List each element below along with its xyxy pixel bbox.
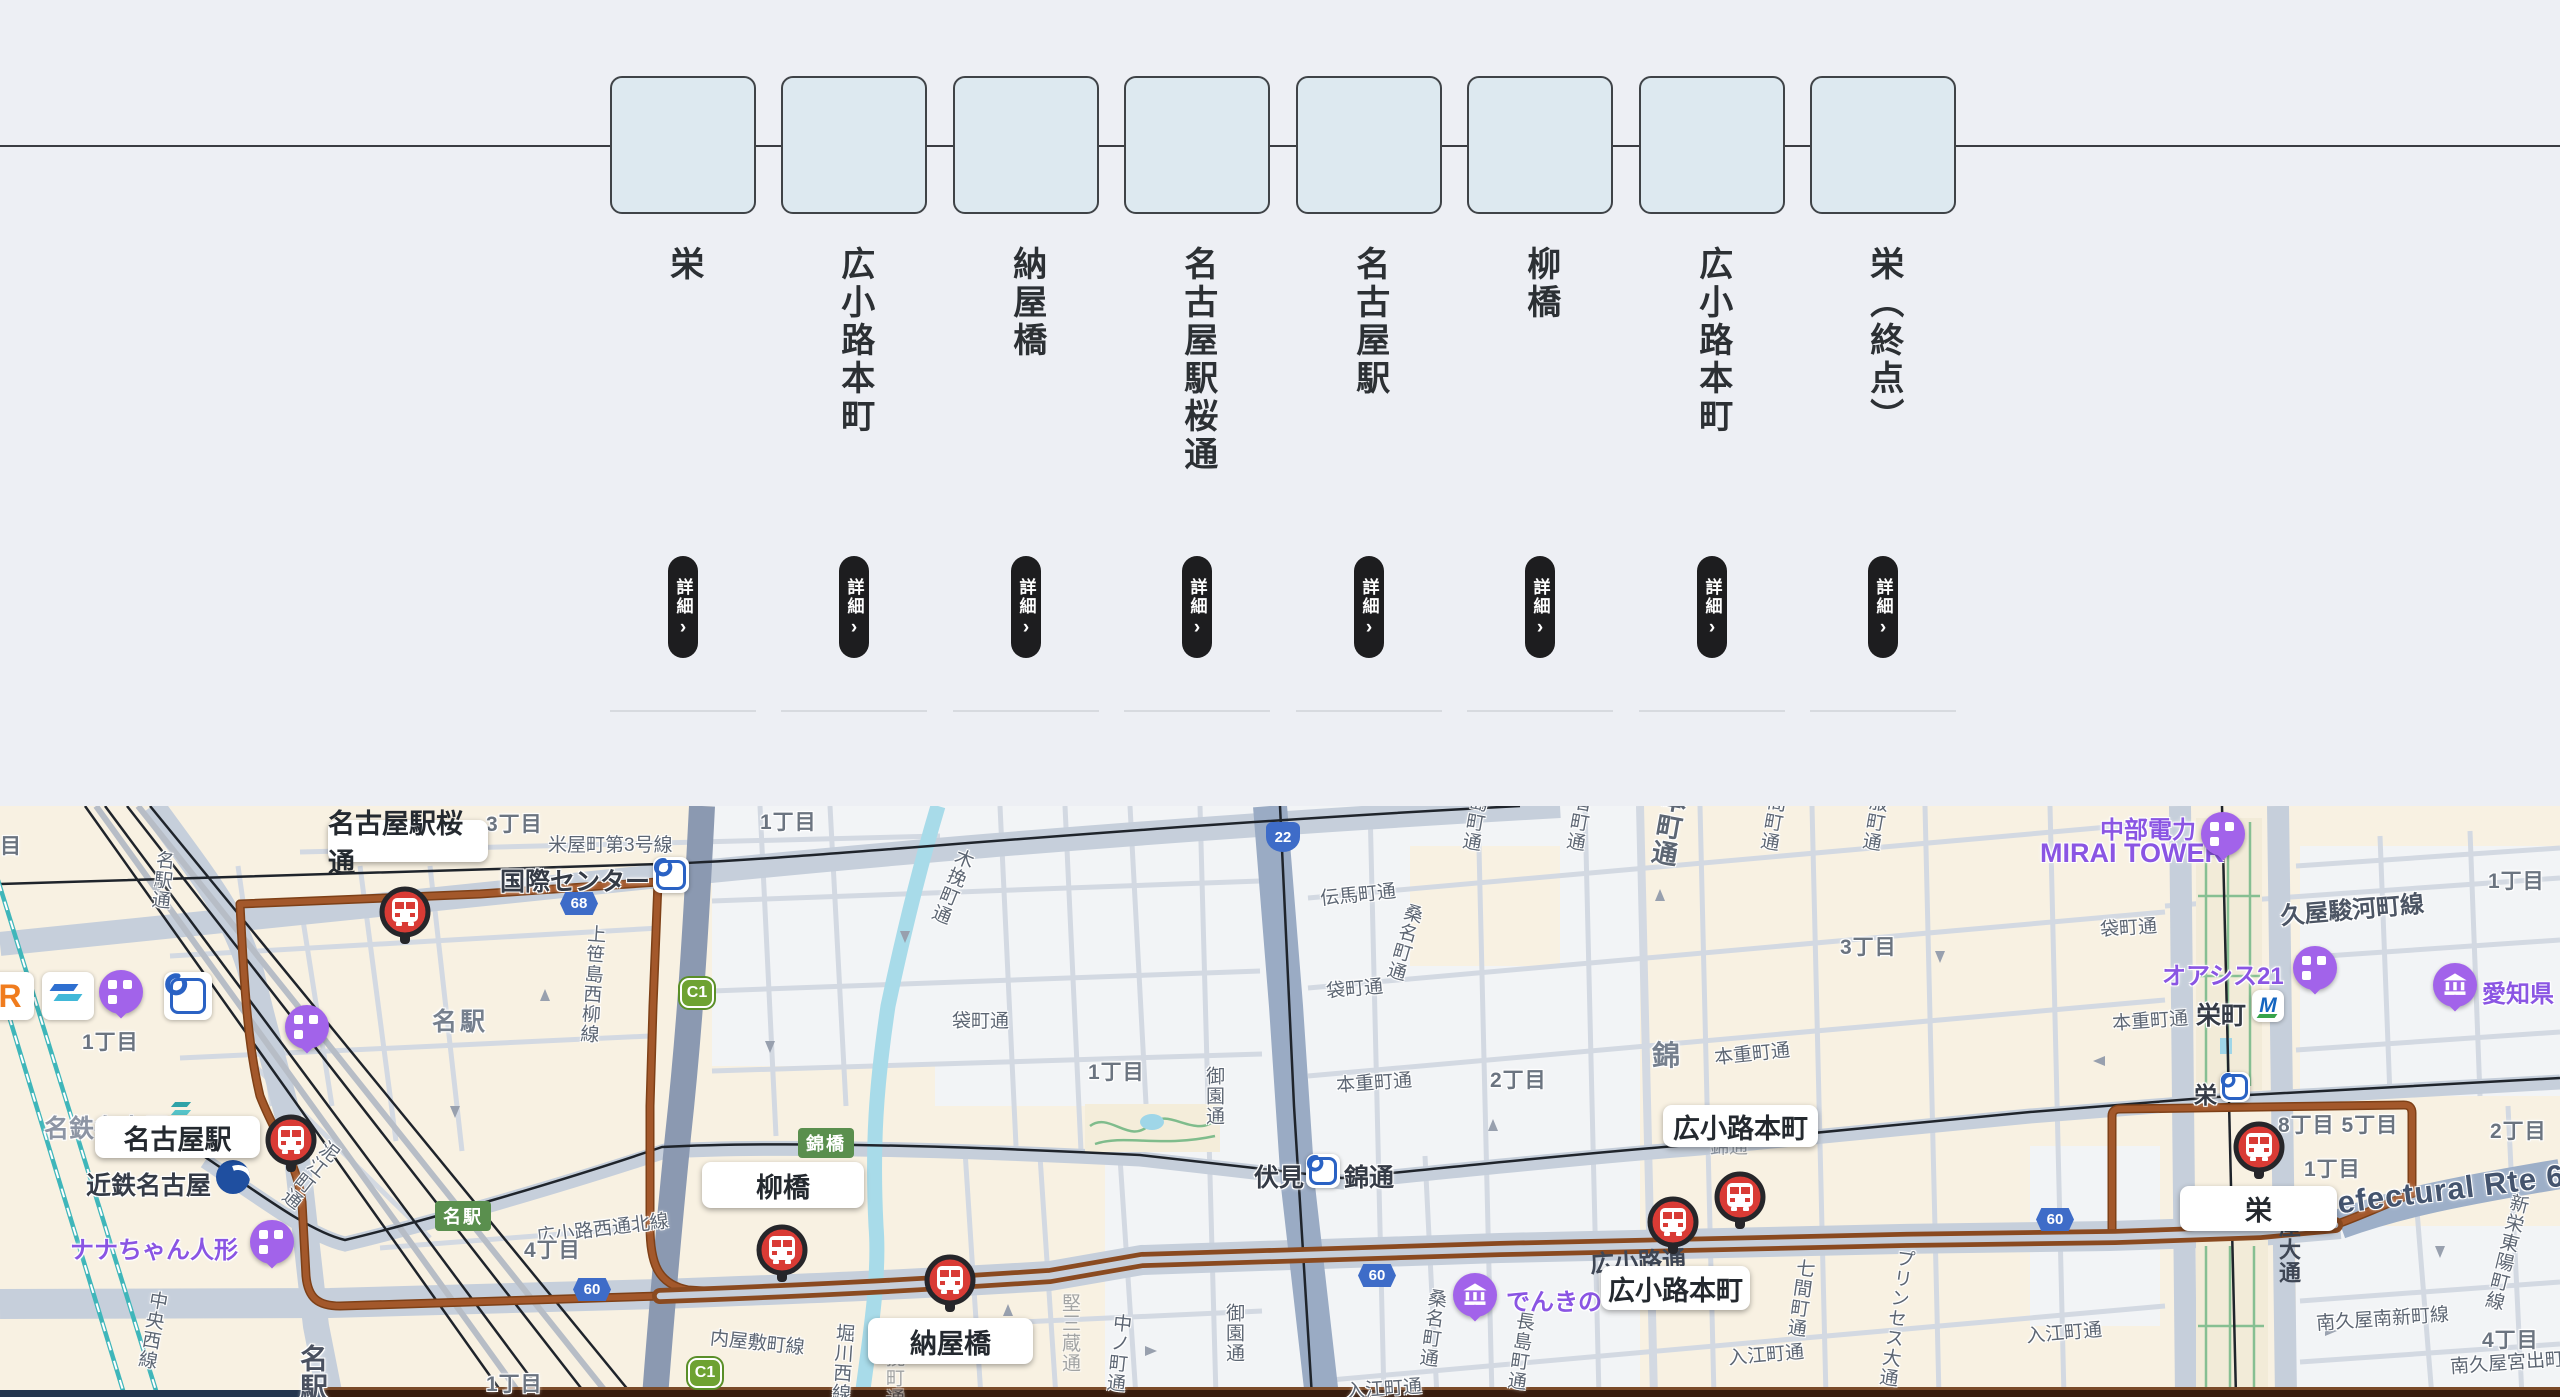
station-name: 名古屋駅桜通: [1178, 246, 1215, 474]
road-label: 名駅通: [292, 1344, 332, 1397]
chevron-icon: ›: [1194, 618, 1200, 637]
station-box-nayabashi[interactable]: [953, 76, 1099, 214]
road-label: 本重町通: [2111, 1003, 2189, 1035]
station-box-nagoyaekisakuradori[interactable]: [1124, 76, 1270, 214]
station-label-nishikidori: 錦通: [1344, 1158, 1394, 1194]
route-map[interactable]: 68 C1 C1 22 60 60 60 錦橋 名駅 米屋町第3号線 名駅通 上…: [0, 806, 2560, 1397]
station-name: 柳橋: [1521, 246, 1558, 322]
road-label: 本重町通: [1335, 1065, 1413, 1097]
station-name: 栄（終点）: [1864, 246, 1901, 436]
station-box-nagoyaeki[interactable]: [1296, 76, 1442, 214]
museum-pin-icon[interactable]: [1453, 1273, 1497, 1317]
jr-logo-icon: R: [0, 972, 34, 1020]
station-pin-icon[interactable]: [250, 1220, 294, 1264]
block-label: 3丁目: [1840, 931, 1897, 961]
bottom-strip: [0, 1387, 2560, 1397]
station-box-yanagibashi[interactable]: [1467, 76, 1613, 214]
block-label: 3丁目: [486, 808, 543, 838]
detail-button[interactable]: 詳細›: [1868, 556, 1898, 658]
station-label-kintetsu-nagoya: 近鉄名古屋: [86, 1166, 211, 1202]
station-box-sakae[interactable]: [610, 76, 756, 214]
kintetsu-logo-icon: [216, 1160, 250, 1194]
divider: [1124, 710, 1270, 712]
national-route-shield-22: 22: [1266, 822, 1300, 852]
subway-logo-icon: [2220, 1072, 2250, 1102]
aonami-logo-icon: [42, 972, 94, 1020]
bus-stop-label[interactable]: 名古屋駅桜通: [328, 820, 488, 862]
poi-label-aichi-ken: 愛知県: [2482, 974, 2554, 1009]
block-label: 1丁目: [2304, 1153, 2361, 1183]
block-label: 1丁目: [486, 1368, 543, 1397]
chevron-icon: ›: [1023, 618, 1029, 637]
route-shield-60: 60: [1358, 1264, 1396, 1287]
poi-label-oasis21: オアシス21: [2162, 956, 2284, 991]
block-label: 1丁目: [2488, 865, 2545, 895]
bus-stop-label[interactable]: 栄: [2180, 1186, 2337, 1231]
block-label: 1丁目: [760, 806, 817, 836]
block-label: 4丁目: [2482, 1324, 2539, 1354]
station-label-fushimi: 伏見: [1254, 1158, 1304, 1194]
subway-logo-icon: [653, 857, 689, 893]
district-label: 名駅: [432, 1002, 488, 1038]
subway-logo-icon: [164, 972, 212, 1020]
route-shield-60: 60: [2036, 1208, 2074, 1231]
route-shield-60: 60: [573, 1278, 611, 1301]
chevron-icon: ›: [1366, 618, 1372, 637]
poi-label-nanachan: ナナちゃん人形: [70, 1230, 238, 1265]
detail-button[interactable]: 詳細›: [1354, 556, 1384, 658]
road-label: 袋町通: [2099, 911, 2158, 942]
bus-stop-label[interactable]: 広小路本町: [1601, 1266, 1750, 1310]
block-label: 2丁目: [1490, 1064, 1547, 1094]
detail-button[interactable]: 詳細›: [1697, 556, 1727, 658]
expressway-shield-c1: C1: [680, 978, 714, 1008]
road-label: 堅三蔵通: [1056, 1293, 1083, 1373]
bus-stop-label[interactable]: 納屋橋: [868, 1318, 1033, 1364]
bus-stop-icon[interactable]: [1710, 1155, 1770, 1239]
block-label: 4丁目: [524, 1234, 581, 1264]
divider: [610, 710, 756, 712]
meitetsu-mark-icon: [173, 1102, 189, 1115]
station-pin-icon[interactable]: [285, 1005, 329, 1049]
detail-button[interactable]: 詳細›: [1182, 556, 1212, 658]
station-pin-icon[interactable]: [2293, 946, 2337, 990]
road-label: 堀川西線: [825, 1322, 858, 1397]
station-label-sakaemachi: 栄町: [2196, 996, 2246, 1032]
district-label: 錦: [1652, 1034, 1683, 1074]
poi-label-mirai-tower: MIRAI TOWER: [2040, 838, 2224, 869]
museum-pin-icon[interactable]: [2433, 963, 2477, 1007]
divider: [953, 710, 1099, 712]
station-box-hirokojihoncho2[interactable]: [1639, 76, 1785, 214]
bus-stop-label[interactable]: 柳橋: [702, 1162, 864, 1208]
divider: [1639, 710, 1785, 712]
divider: [1296, 710, 1442, 712]
detail-button[interactable]: 詳細›: [1525, 556, 1555, 658]
station-box-sakae-last[interactable]: [1810, 76, 1956, 214]
bus-stop-label[interactable]: 広小路本町: [1663, 1105, 1818, 1147]
station-name: 名古屋駅: [1350, 246, 1387, 398]
road-label: 御園通: [1200, 1066, 1227, 1126]
chevron-icon: ›: [1880, 618, 1886, 637]
road-label: 御園通: [1220, 1303, 1247, 1363]
bus-stop-icon[interactable]: [752, 1208, 812, 1292]
road-label: 入江町通: [1345, 1371, 1423, 1397]
chevron-icon: ›: [680, 618, 686, 637]
subway-logo-icon: [1306, 1154, 1340, 1188]
bus-stop-icon[interactable]: [1643, 1180, 1703, 1264]
block-label: 目: [0, 830, 22, 860]
bus-stop-icon[interactable]: [375, 870, 435, 954]
road-shield-meieki: 名駅: [435, 1201, 491, 1231]
bus-stop-icon[interactable]: [920, 1238, 980, 1322]
station-name: 栄: [664, 246, 701, 284]
poi-label-denki: でんきの: [1506, 1282, 1602, 1317]
station-name: 納屋橋: [1007, 246, 1044, 360]
chevron-icon: ›: [1709, 618, 1715, 637]
road-label: 米屋町第3号線: [548, 830, 673, 857]
bridge-shield-nishikibashi: 錦橋: [798, 1128, 854, 1158]
route-line: [0, 145, 2560, 147]
block-label: 2丁目: [2490, 1115, 2547, 1145]
station-label-sakae-subway: 栄: [2194, 1076, 2217, 1110]
divider: [1810, 710, 1956, 712]
block-label: 1丁目: [1088, 1056, 1145, 1086]
bus-stop-icon[interactable]: [261, 1098, 321, 1182]
bus-stop-label[interactable]: 名古屋駅: [95, 1116, 260, 1158]
route-stop-bar: 栄 広小路本町 納屋橋 名古屋駅桜通 名古屋駅 柳橋 広小路本町 栄（終点） 詳…: [0, 0, 2560, 806]
road-label: 袋町通: [1325, 972, 1384, 1004]
station-box-hirokojihoncho[interactable]: [781, 76, 927, 214]
station-name: 広小路本町: [835, 246, 872, 436]
station-pin-icon[interactable]: [2201, 812, 2245, 856]
expressway-shield-c1: C1: [688, 1358, 722, 1388]
chevron-icon: ›: [851, 618, 857, 637]
detail-button[interactable]: 詳細›: [839, 556, 869, 658]
detail-button[interactable]: 詳細›: [668, 556, 698, 658]
block-label: 8丁目 5丁目: [2278, 1109, 2398, 1139]
chevron-icon: ›: [1537, 618, 1543, 637]
route-shield-68: 68: [560, 892, 598, 915]
station-name: 広小路本町: [1693, 246, 1730, 436]
bus-stop-icon[interactable]: [2229, 1105, 2289, 1189]
station-pin-icon[interactable]: [99, 970, 143, 1014]
meitetsu-logo-icon: M: [2252, 990, 2284, 1022]
detail-button[interactable]: 詳細›: [1011, 556, 1041, 658]
divider: [781, 710, 927, 712]
road-label: 袋町通: [952, 1006, 1009, 1033]
block-label: 1丁目: [82, 1026, 139, 1056]
divider: [1467, 710, 1613, 712]
